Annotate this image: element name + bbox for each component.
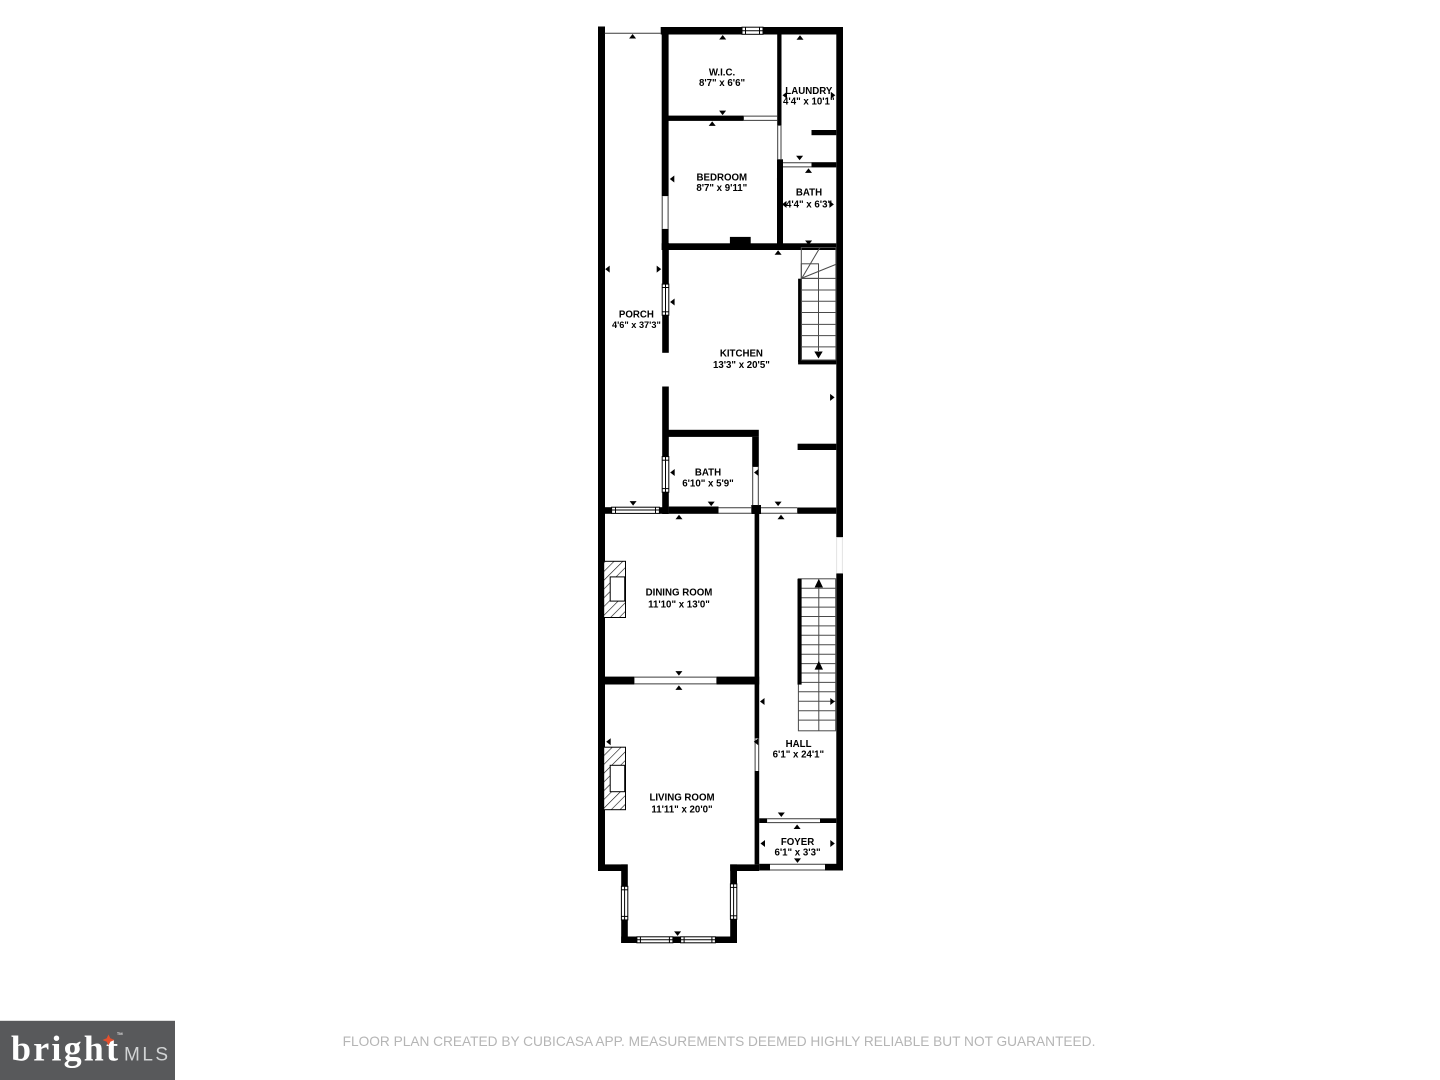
svg-text:13'3" x 20'5": 13'3" x 20'5" — [713, 360, 770, 371]
svg-text:BATH: BATH — [695, 468, 721, 479]
svg-text:BATH: BATH — [796, 188, 822, 199]
svg-text:PORCH: PORCH — [619, 310, 654, 321]
svg-text:FOYER: FOYER — [781, 837, 814, 848]
svg-text:FLOOR PLAN CREATED BY CUBICASA: FLOOR PLAN CREATED BY CUBICASA APP. MEAS… — [343, 1034, 1096, 1049]
svg-text:6'1" x 24'1": 6'1" x 24'1" — [773, 750, 825, 761]
svg-text:bright: bright — [11, 1029, 120, 1069]
svg-text:11'10" x 13'0": 11'10" x 13'0" — [648, 600, 710, 611]
svg-text:MLS: MLS — [124, 1045, 171, 1066]
svg-text:LAUNDRY: LAUNDRY — [785, 86, 833, 97]
svg-text:4'6" x 37'3": 4'6" x 37'3" — [612, 320, 661, 330]
svg-text:8'7" x 9'11": 8'7" x 9'11" — [696, 183, 747, 194]
svg-text:4'4" x 10'1": 4'4" x 10'1" — [783, 97, 835, 108]
svg-text:6'10" x 5'9": 6'10" x 5'9" — [682, 479, 734, 490]
svg-text:™: ™ — [117, 1032, 124, 1039]
svg-text:HALL: HALL — [786, 739, 812, 750]
svg-text:11'11" x 20'0": 11'11" x 20'0" — [651, 805, 712, 816]
svg-text:8'7" x 6'6": 8'7" x 6'6" — [699, 78, 745, 89]
svg-text:4'4" x 6'3": 4'4" x 6'3" — [786, 200, 832, 211]
svg-text:W.I.C.: W.I.C. — [709, 68, 736, 79]
svg-text:LIVING ROOM: LIVING ROOM — [649, 793, 714, 804]
svg-text:6'1" x 3'3": 6'1" x 3'3" — [774, 848, 820, 859]
svg-text:BEDROOM: BEDROOM — [697, 173, 748, 184]
svg-text:DINING ROOM: DINING ROOM — [646, 588, 713, 599]
svg-text:KITCHEN: KITCHEN — [720, 349, 763, 360]
